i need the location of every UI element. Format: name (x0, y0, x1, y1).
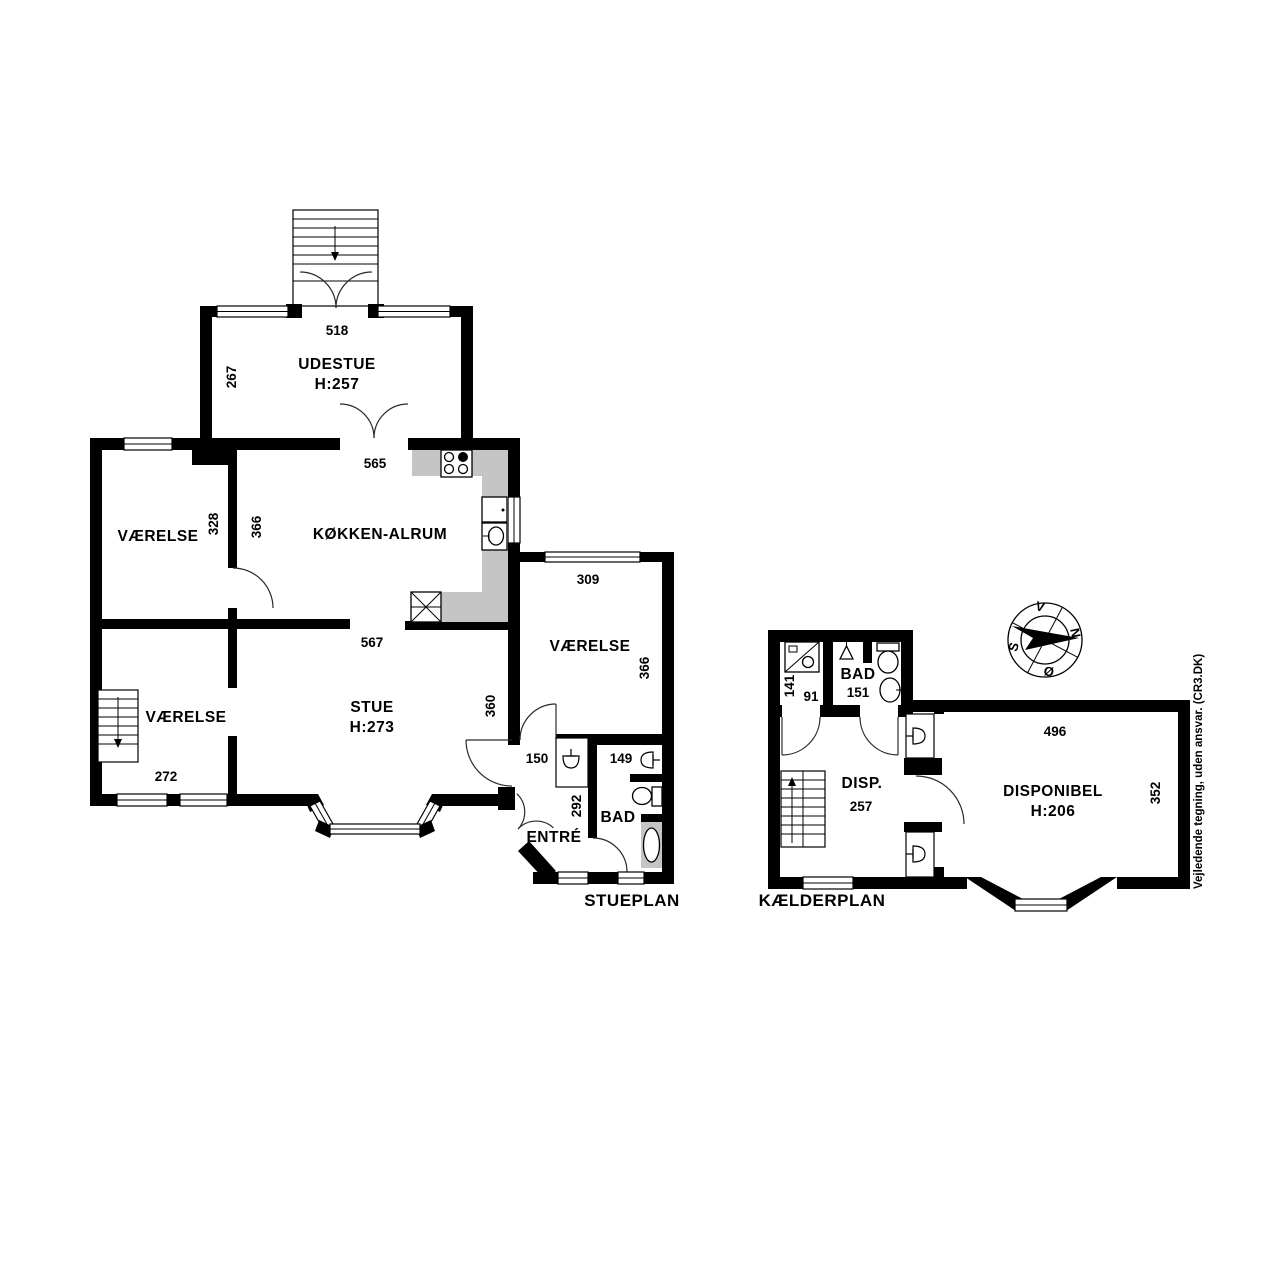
dim-entre-width: 150 (526, 751, 549, 766)
dim-disponibel-width: 496 (1044, 724, 1067, 739)
kaelder-toilet-icon (877, 643, 899, 673)
dim-disponibel-depth: 352 (1148, 782, 1163, 805)
vaerelse-r-window (545, 552, 640, 562)
dim-koekken-width: 565 (364, 456, 387, 471)
dim-kaelder-bad-width: 151 (847, 685, 870, 700)
kaelder-stairs-icon (781, 771, 825, 847)
disp-window (803, 877, 853, 889)
room-label-koekken: KØKKEN-ALRUM (313, 526, 447, 543)
room-label-kaelder-bad: BAD (840, 666, 875, 683)
shower-head-icon (840, 642, 853, 659)
stove-icon (441, 450, 472, 477)
compass-v: V (1034, 598, 1047, 615)
dim-vaerelse-r-width: 309 (577, 572, 600, 587)
washbasin-icon (641, 752, 660, 768)
appliance-icon (411, 592, 441, 622)
room-label-disponibel: DISPONIBEL (1003, 783, 1103, 800)
udestue-right-wall (461, 306, 473, 438)
dim-vaerelse-tl-depth: 328 (206, 512, 221, 535)
disponibel-bay-window (1015, 899, 1067, 911)
height-label-stue: H:273 (350, 719, 395, 736)
disponibel-top-wall (901, 700, 1190, 712)
niche-washbasin-bottom-icon (906, 832, 934, 877)
kaelderplan-drawing: 141 91 BAD 151 DISP. 257 496 DISPONIBEL … (759, 630, 1190, 911)
udestue-top-windows (217, 306, 450, 317)
dim-udestue-depth: 267 (224, 366, 239, 389)
udestue-left-wall (200, 306, 212, 438)
floorplan-canvas: 518 UDESTUE H:257 267 565 KØKKEN-ALRUM 3… (0, 0, 1280, 1280)
dim-bruser-width: 91 (803, 689, 819, 704)
dim-entre-depth: 292 (569, 795, 584, 818)
room-label-vaerelse-tl: VÆRELSE (117, 528, 198, 545)
exterior-stairs-icon (293, 210, 378, 306)
shower-icon (641, 822, 662, 868)
height-label-udestue: H:257 (315, 376, 360, 393)
dim-vaerelse-bl-width: 272 (155, 769, 178, 784)
stue-door-swing (466, 740, 512, 786)
room-label-disp: DISP. (842, 775, 883, 792)
top-wall-window (124, 438, 172, 450)
kitchen-sink-icon (482, 523, 507, 550)
room-label-udestue: UDESTUE (298, 356, 376, 373)
kaelder-washbasin-icon (880, 678, 901, 702)
vaerelse-r-door-swing (520, 704, 556, 740)
disp-door-swing (916, 776, 964, 824)
vaerelse-tl-door-swing (233, 568, 273, 608)
entre-washbasin-icon (556, 738, 588, 787)
disclaimer-text: Vejledende tegning, uden ansvar. (CR3.DK… (1193, 654, 1205, 889)
room-label-bad: BAD (600, 809, 635, 826)
dim-disp-width: 257 (850, 799, 873, 814)
niche-washbasin-top-icon (906, 714, 934, 758)
room-label-stue: STUE (350, 699, 393, 716)
room-label-vaerelse-r: VÆRELSE (549, 638, 630, 655)
dim-stue-depth: 360 (483, 695, 498, 718)
dim-bruser-depth: 141 (782, 674, 797, 697)
dim-udestue-width: 518 (326, 323, 349, 338)
kitchen-wall-window (508, 497, 520, 543)
compass-s: S (1005, 640, 1022, 653)
chimney (192, 440, 237, 465)
interior-stairs-icon (98, 690, 138, 762)
dim-koekken-depth: 366 (249, 515, 264, 538)
room-label-entre: ENTRÉ (526, 829, 581, 846)
toilet-icon (633, 787, 663, 806)
height-label-disponibel: H:206 (1031, 803, 1076, 820)
dim-stue-width: 567 (361, 635, 384, 650)
plan-label-stueplan: STUEPLAN (584, 891, 680, 910)
room-label-vaerelse-bl: VÆRELSE (145, 709, 226, 726)
compass-rose-icon: V N S Ø (1005, 598, 1084, 680)
fridge-icon (482, 497, 507, 522)
compass-oe: Ø (1042, 663, 1055, 680)
bad-door-swing (593, 838, 627, 872)
dim-bad-width: 149 (610, 751, 633, 766)
bruser-door-swing (782, 717, 820, 755)
udestue-interior-door-swing (340, 404, 408, 438)
right-outer-wall (662, 552, 674, 884)
bay-window (302, 794, 448, 838)
shower-cabin-icon (785, 642, 819, 672)
kaelder-bad-door-swing (860, 717, 898, 755)
stueplan-drawing: 518 UDESTUE H:257 267 565 KØKKEN-ALRUM 3… (90, 210, 680, 910)
plan-label-kaelderplan: KÆLDERPLAN (759, 891, 886, 910)
dim-vaerelse-r-depth: 366 (637, 656, 652, 679)
